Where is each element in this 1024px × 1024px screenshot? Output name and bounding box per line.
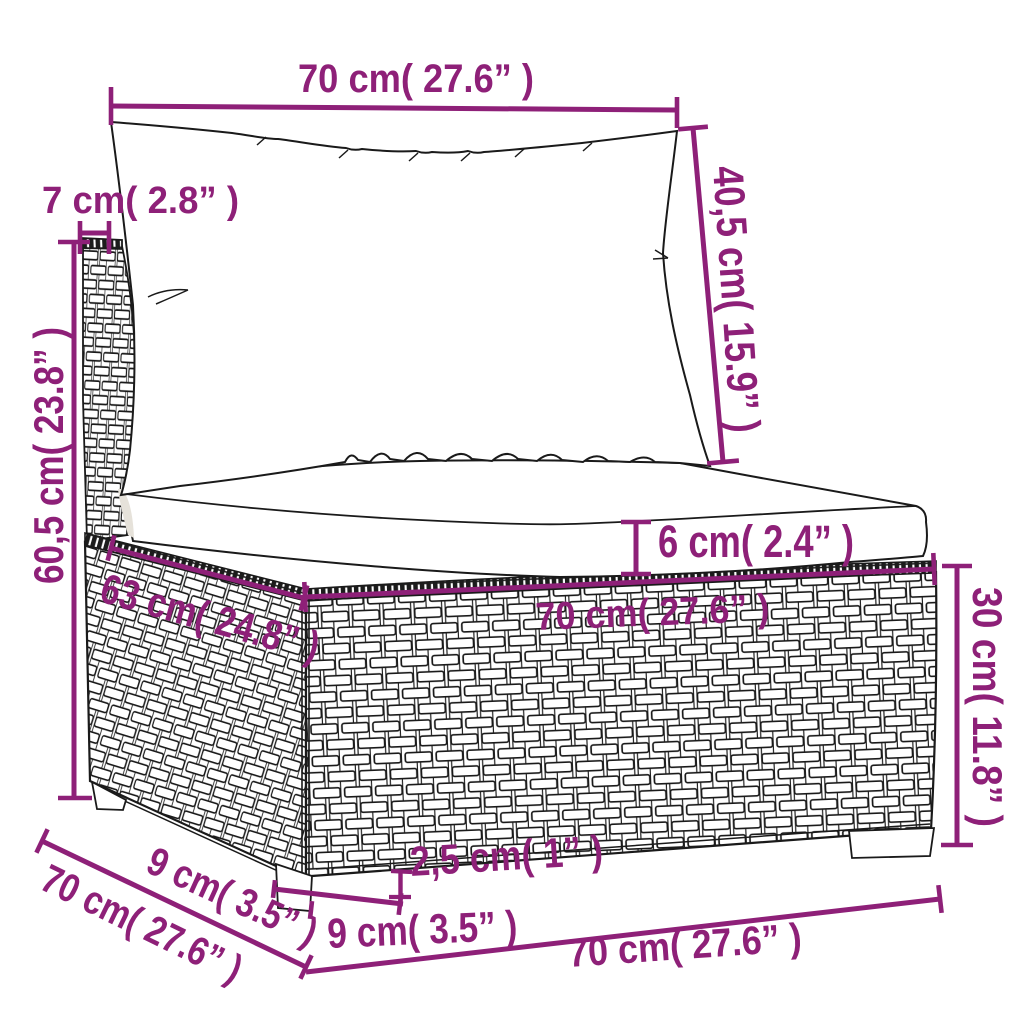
svg-text:6 cm( 2.4” ): 6 cm( 2.4” ) <box>658 516 854 567</box>
svg-text:60,5 cm( 23.8” ): 60,5 cm( 23.8” ) <box>25 327 72 584</box>
svg-text:7 cm( 2.8” ): 7 cm( 2.8” ) <box>42 180 239 222</box>
svg-text:70 cm( 27.6” ): 70 cm( 27.6” ) <box>298 57 534 101</box>
svg-text:9 cm( 3.5” ): 9 cm( 3.5” ) <box>326 902 518 957</box>
svg-text:70 cm( 27.6” ): 70 cm( 27.6” ) <box>535 587 770 639</box>
svg-text:30 cm( 11.8” ): 30 cm( 11.8” ) <box>964 587 1011 827</box>
